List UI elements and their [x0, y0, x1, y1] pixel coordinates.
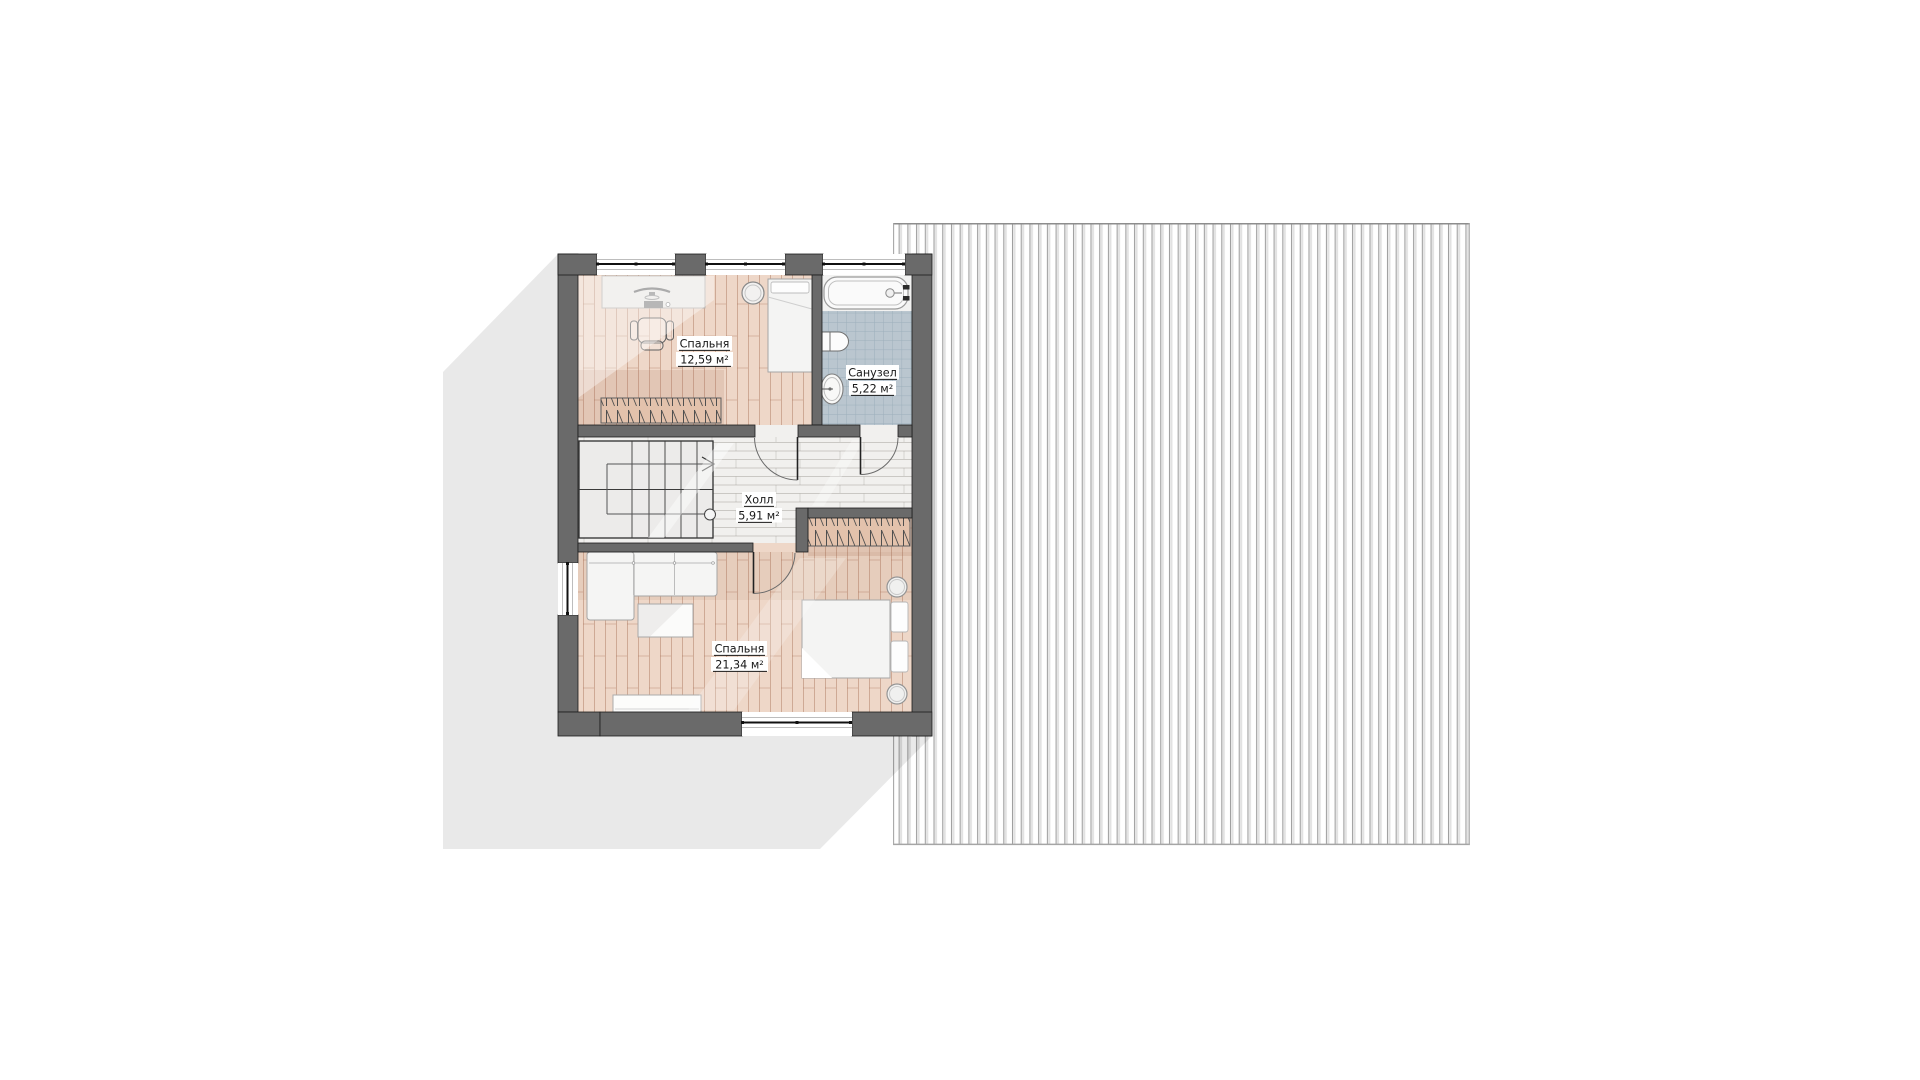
faucet-mixer-2 — [903, 296, 910, 301]
bed-pillow-top — [891, 602, 908, 632]
wall-pier-top-3 — [785, 254, 823, 275]
roof-slat-stripes — [893, 223, 1470, 845]
wall-bottom-right-pier — [852, 712, 932, 736]
wall-hall-bedroom2-right — [808, 508, 912, 518]
roof-hatch-area — [893, 223, 1470, 845]
toilet — [822, 332, 849, 351]
coffee-table — [638, 604, 693, 637]
pedestal-sink — [821, 374, 843, 404]
wall-pier-top-4 — [905, 254, 932, 275]
floor-plan-drawing: Спальня 12,59 м² Санузел 5,22 м² Холл 5,… — [0, 0, 1920, 1080]
window-bedroom1-right — [705, 254, 785, 275]
faucet-mixer — [903, 285, 910, 290]
room-area: 12,59 м² — [680, 354, 729, 367]
window-bedroom1-left — [596, 254, 675, 275]
room-area: 5,22 м² — [852, 383, 893, 396]
wall-left-lower — [558, 615, 578, 712]
wall-pier-top-1 — [558, 254, 597, 275]
floor-plan-canvas: Спальня 12,59 м² Санузел 5,22 м² Холл 5,… — [0, 0, 1920, 1080]
wall-bottom-left-pier — [558, 712, 600, 736]
nightstand-lamp-bottom — [887, 684, 907, 704]
hanger-hatch-2 — [808, 517, 910, 546]
wall-bottom — [600, 712, 742, 736]
bathtub — [822, 275, 912, 311]
wall-left-upper — [558, 254, 578, 563]
bathtub-drain — [886, 289, 894, 297]
round-side-table — [742, 282, 764, 304]
bed-pillow — [771, 282, 809, 293]
wall-hall-bedroom2-left — [578, 543, 753, 552]
wall-hall-top-mid — [798, 425, 860, 437]
window-bedroom2-bottom — [741, 712, 852, 736]
wall-right — [912, 254, 932, 736]
wardrobe-bedroom-1 — [601, 398, 721, 423]
hanger-hatch — [601, 398, 721, 423]
wardrobe-bedroom-2 — [808, 517, 910, 546]
tv-console — [613, 695, 701, 712]
stair-newel-post — [705, 509, 716, 520]
room-name: Спальня — [715, 643, 765, 656]
room-name: Спальня — [680, 338, 730, 351]
window-bedroom2-left — [558, 562, 578, 615]
wall-hall-top-right — [898, 425, 912, 437]
wall-bedroom1-bathroom — [812, 275, 822, 425]
room-area: 21,34 м² — [715, 659, 764, 672]
bed-pillow-bottom — [891, 641, 908, 672]
nightstand-lamp-top — [887, 577, 907, 597]
wall-step-stub — [796, 508, 808, 552]
single-bed — [768, 279, 812, 372]
room-name: Санузел — [848, 367, 897, 380]
window-bathroom — [822, 254, 905, 275]
room-area: 5,91 м² — [738, 510, 779, 523]
wall-hall-top-left — [578, 425, 755, 437]
wall-pier-top-2 — [675, 254, 706, 275]
room-name: Холл — [745, 494, 774, 507]
